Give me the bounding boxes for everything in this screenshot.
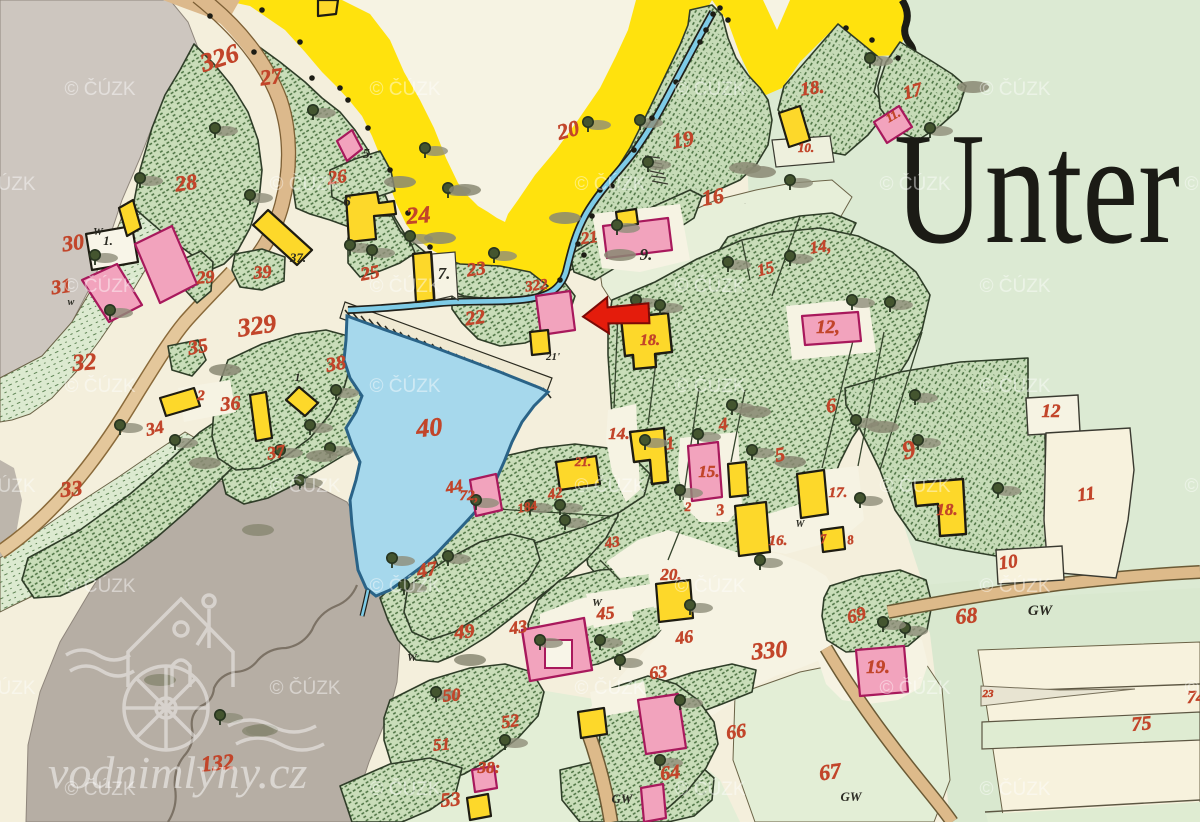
svg-text:15.: 15. [698,462,719,481]
svg-text:68: 68 [954,602,978,629]
svg-text:© ČÚZK: © ČÚZK [980,778,1051,800]
svg-text:50: 50 [442,684,462,705]
svg-text:42: 42 [546,485,565,504]
svg-text:6: 6 [343,194,351,210]
svg-text:17.: 17. [829,485,848,501]
svg-text:© ČÚZK: © ČÚZK [1185,173,1200,195]
svg-text:© ČÚZK: © ČÚZK [675,575,746,597]
svg-text:© ČÚZK: © ČÚZK [675,275,746,297]
svg-text:© ČÚZK: © ČÚZK [65,275,136,297]
svg-text:22: 22 [463,306,487,331]
svg-text:38:: 38: [477,758,501,777]
svg-text:12,: 12, [816,317,840,338]
svg-text:35: 35 [185,335,210,360]
svg-text:© ČÚZK: © ČÚZK [980,78,1051,100]
svg-text:23: 23 [464,258,487,282]
svg-text:© ČÚZK: © ČÚZK [980,375,1051,397]
svg-text:W: W [796,519,806,530]
svg-text:32: 32 [70,349,97,377]
svg-text:© ČÚZK: © ČÚZK [370,575,441,597]
svg-text:© ČÚZK: © ČÚZK [1185,677,1200,699]
svg-text:© ČÚZK: © ČÚZK [0,677,36,699]
svg-text:© ČÚZK: © ČÚZK [1185,475,1200,497]
svg-text:19: 19 [670,125,696,153]
svg-text:21.: 21. [574,454,591,469]
svg-text:51: 51 [432,734,451,754]
svg-text:30: 30 [59,229,85,257]
svg-text:© ČÚZK: © ČÚZK [370,275,441,297]
svg-text:14.: 14. [608,424,629,443]
svg-text:19.: 19. [866,657,890,678]
svg-text:21: 21 [579,227,599,248]
svg-text:© ČÚZK: © ČÚZK [370,778,441,800]
svg-text:18.: 18. [640,332,660,349]
svg-text:28: 28 [172,169,198,197]
svg-text:29: 29 [195,266,216,288]
svg-text:10.: 10. [798,140,814,155]
svg-text:© ČÚZK: © ČÚZK [880,677,951,699]
svg-text:© ČÚZK: © ČÚZK [880,173,951,195]
svg-text:53: 53 [440,788,462,812]
svg-text:329: 329 [234,309,278,343]
svg-text:23: 23 [982,688,995,700]
svg-text:© ČÚZK: © ČÚZK [675,778,746,800]
svg-text:© ČÚZK: © ČÚZK [575,173,646,195]
svg-text:© ČÚZK: © ČÚZK [270,173,341,195]
svg-text:© ČÚZK: © ČÚZK [980,575,1051,597]
svg-text:18.: 18. [936,500,957,519]
svg-text:66: 66 [725,720,748,745]
svg-text:43: 43 [603,534,622,553]
svg-text:w: w [68,297,75,308]
svg-text:© ČÚZK: © ČÚZK [0,475,36,497]
svg-text:21': 21' [545,351,560,363]
svg-text:© ČÚZK: © ČÚZK [65,78,136,100]
svg-text:© ČÚZK: © ČÚZK [880,475,951,497]
svg-text:75: 75 [1131,712,1153,736]
svg-text:© ČÚZK: © ČÚZK [675,78,746,100]
svg-text:W: W [407,652,418,664]
svg-text:40: 40 [414,412,443,443]
svg-text:© ČÚZK: © ČÚZK [675,375,746,397]
svg-text:© ČÚZK: © ČÚZK [980,275,1051,297]
svg-text:24: 24 [404,202,431,230]
svg-text:39: 39 [252,261,273,283]
svg-text:9.: 9. [640,245,653,264]
svg-text:2: 2 [196,388,205,404]
svg-text:© ČÚZK: © ČÚZK [65,575,136,597]
svg-text:W: W [592,597,603,609]
svg-text:14,: 14, [808,236,832,258]
svg-text:12: 12 [1042,401,1062,422]
svg-text:38: 38 [323,352,348,377]
svg-text:© ČÚZK: © ČÚZK [270,475,341,497]
svg-text:63: 63 [648,661,669,683]
svg-text:© ČÚZK: © ČÚZK [575,677,646,699]
svg-text:67: 67 [817,758,843,786]
svg-text:1.: 1. [295,370,304,384]
svg-text:46: 46 [673,626,695,648]
svg-text:GW: GW [1028,603,1054,619]
svg-text:© ČÚZK: © ČÚZK [370,375,441,397]
svg-text:10: 10 [997,551,1019,575]
svg-text:43: 43 [507,616,529,638]
svg-text:18.: 18. [799,77,825,101]
svg-text:© ČÚZK: © ČÚZK [370,78,441,100]
svg-text:322: 322 [523,276,549,295]
svg-text:GW: GW [841,789,863,804]
svg-text:27: 27 [257,63,284,91]
svg-text:2: 2 [684,499,692,514]
svg-text:GW: GW [612,791,634,806]
svg-text:49: 49 [453,620,476,644]
svg-text:© ČÚZK: © ČÚZK [0,173,36,195]
svg-text:vodnimlyny.cz: vodnimlyny.cz [48,747,307,798]
svg-text:5.: 5. [363,147,374,162]
svg-text:36: 36 [219,392,242,416]
svg-text:52: 52 [500,710,521,732]
svg-text:33: 33 [58,475,83,502]
svg-text:© ČÚZK: © ČÚZK [575,475,646,497]
svg-text:330: 330 [749,637,788,666]
svg-text:72,: 72, [460,488,479,504]
svg-text:16: 16 [700,182,726,210]
svg-text:1.: 1. [103,233,113,248]
svg-text:© ČÚZK: © ČÚZK [65,375,136,397]
svg-text:© ČÚZK: © ČÚZK [270,677,341,699]
svg-text:16.: 16. [769,533,788,549]
svg-text:37.: 37. [289,250,306,265]
svg-text:11: 11 [1076,483,1097,506]
